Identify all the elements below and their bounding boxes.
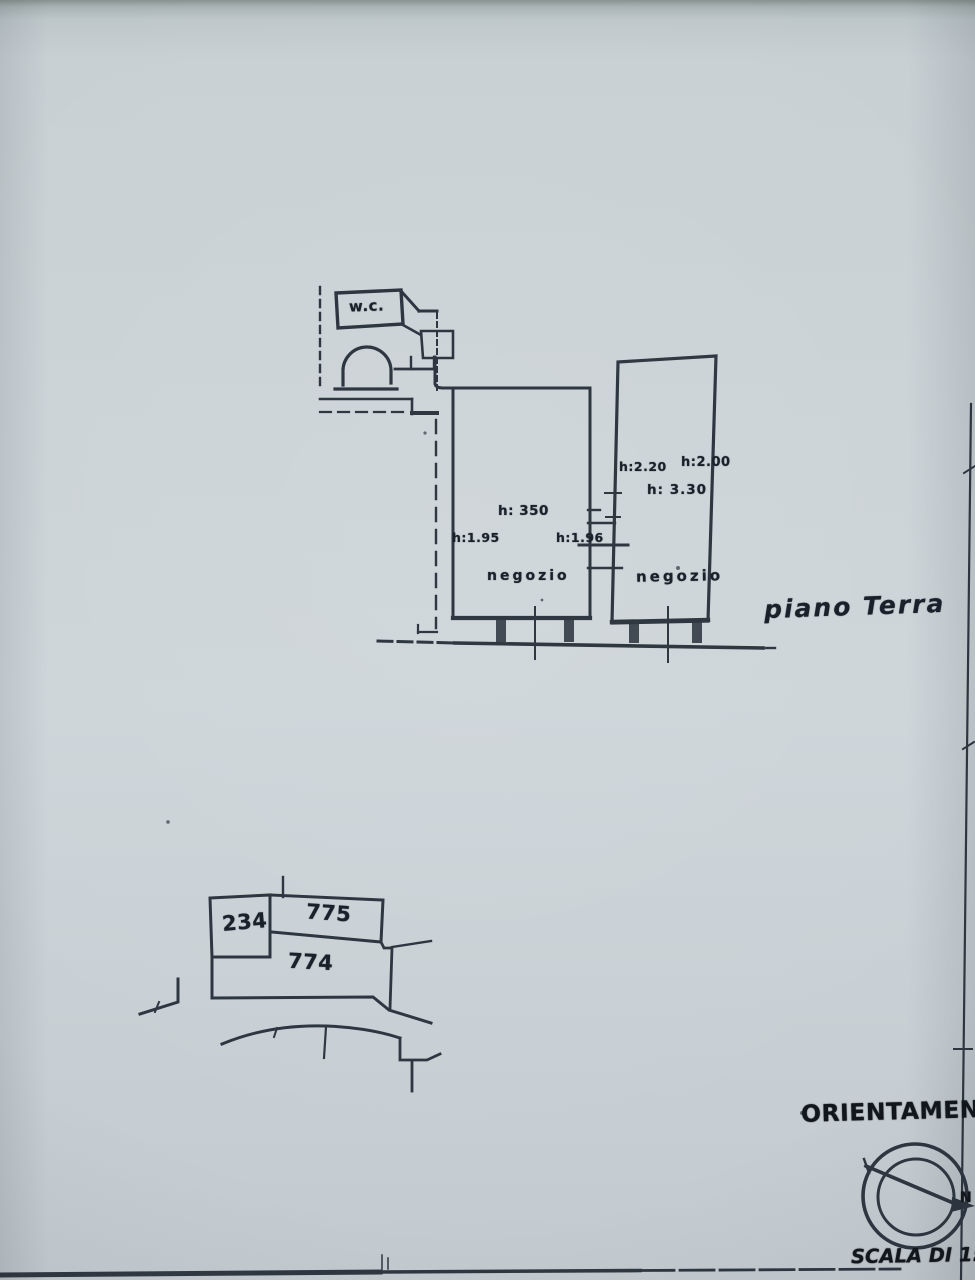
height-label-passage: h:1.96	[556, 530, 604, 545]
height-label-center-room: h: 350	[498, 503, 549, 519]
orientation-title: ORIENTAMENTO	[801, 1094, 975, 1128]
height-label-right-room-b: h:2.00	[681, 455, 731, 470]
north-label: N	[960, 1190, 972, 1206]
right-border-line	[954, 404, 975, 1280]
scanned-floor-plan-page: w.c. h: 350 h:1.95 h:1.96 negozio h:2.20…	[0, 0, 975, 1280]
floor-plan-drawing	[0, 0, 975, 1280]
height-label-left-wall: h:1.95	[452, 530, 500, 545]
negozio-right-label: negozio	[636, 566, 723, 586]
survey-ticks	[535, 607, 668, 662]
site-plan-road	[222, 1026, 440, 1091]
street-baseline	[378, 641, 775, 648]
dashed-boundary-line	[418, 420, 437, 633]
compass-icon	[863, 1144, 975, 1248]
bottom-border-line	[0, 1255, 900, 1275]
street-piers	[496, 620, 702, 643]
negozio-left-label: negozio	[487, 568, 570, 584]
parcel-number-775: 775	[305, 899, 352, 926]
height-label-right-room-c: h: 3.30	[647, 482, 707, 498]
parcel-number-774: 774	[287, 949, 334, 975]
wc-complex-outline	[320, 287, 453, 414]
scale-label: SCALA DI 1: 2	[851, 1243, 975, 1269]
height-label-right-room-a: h:2.20	[619, 459, 667, 474]
parcel-number-234: 234	[221, 908, 268, 936]
site-plan-outline	[140, 877, 431, 1023]
wc-room-label: w.c.	[349, 296, 385, 315]
